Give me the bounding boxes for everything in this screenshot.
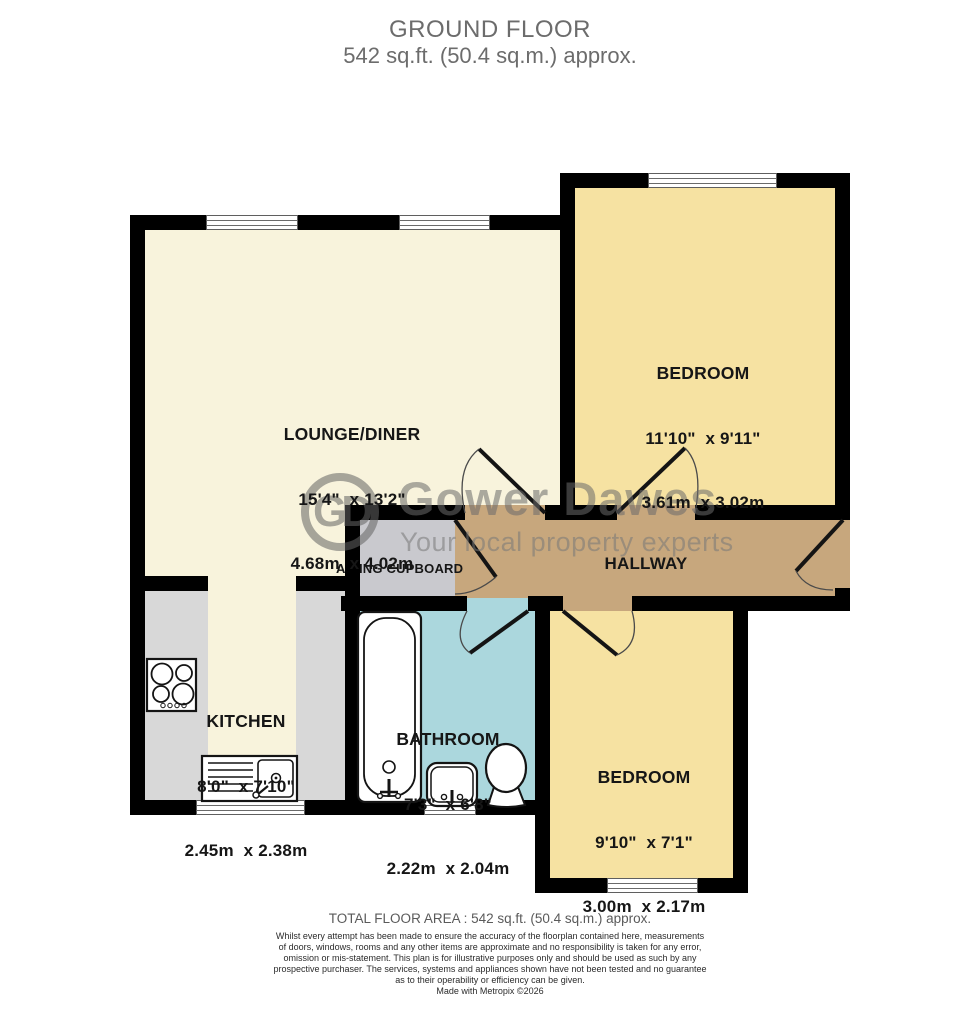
room-dims-ft: 11'10" x 9'11" [642,428,765,450]
door-arc-bedroom-2 [617,611,634,655]
room-dims-ft: 7'3" x 6'8" [387,794,510,816]
floor-title: GROUND FLOOR [0,16,980,44]
floorplan-page: GROUND FLOOR 542 sq.ft. (50.4 sq.m.) app… [0,0,980,1022]
room-name: KITCHEN [185,711,308,733]
room-dims-m: 2.45m x 2.38m [185,840,308,862]
room-label-bedroom-1: BEDROOM 11'10" x 9'11" 3.61m x 3.02m [642,320,765,557]
door-leaf-airing-cupboard [455,520,496,577]
door-arc-bathroom [460,611,470,653]
door-leaf-lounge [479,449,545,513]
room-name: BEDROOM [583,767,706,789]
door-arc-lounge [462,449,479,513]
room-dims-ft: 9'10" x 7'1" [583,832,706,854]
door-arc-entrance [796,571,833,590]
door-leaf-bathroom [470,611,528,653]
room-dims-ft: 15'4" x 13'2" [284,489,421,511]
door-leaf-entrance [796,520,843,571]
disclaimer-line: Whilst every attempt has been made to en… [0,931,980,942]
room-label-kitchen: KITCHEN 8'0" x 7'10" 2.45m x 2.38m [185,668,308,905]
disclaimer-line: omission or mis-statement. This plan is … [0,953,980,964]
room-name: LOUNGE/DINER [284,424,421,446]
room-dims-ft: 8'0" x 7'10" [185,776,308,798]
room-dims-m: 2.22m x 2.04m [387,858,510,880]
room-dims-m: 3.61m x 3.02m [642,492,765,514]
room-label-lounge: LOUNGE/DINER 15'4" x 13'2" 4.68m x 4.02m [284,381,421,618]
disclaimer-line: prospective purchaser. The services, sys… [0,964,980,975]
room-name: BATHROOM [387,729,510,751]
room-label-bathroom: BATHROOM 7'3" x 6'8" 2.22m x 2.04m [387,686,510,923]
floor-area-subtitle: 542 sq.ft. (50.4 sq.m.) approx. [0,43,980,69]
door-leaf-bedroom-2 [563,611,617,655]
door-arc-airing-cupboard [455,577,496,594]
room-dims-m: 4.68m x 4.02m [284,553,421,575]
disclaimer-line: of doors, windows, rooms and any other i… [0,942,980,953]
total-floor-area: TOTAL FLOOR AREA : 542 sq.ft. (50.4 sq.m… [0,911,980,926]
room-name: BEDROOM [642,363,765,385]
metropix-credit: Made with Metropix ©2026 [0,986,980,997]
room-label-hallway: HALLWAY [605,553,688,575]
disclaimer-line: as to their operability or efficiency ca… [0,975,980,986]
